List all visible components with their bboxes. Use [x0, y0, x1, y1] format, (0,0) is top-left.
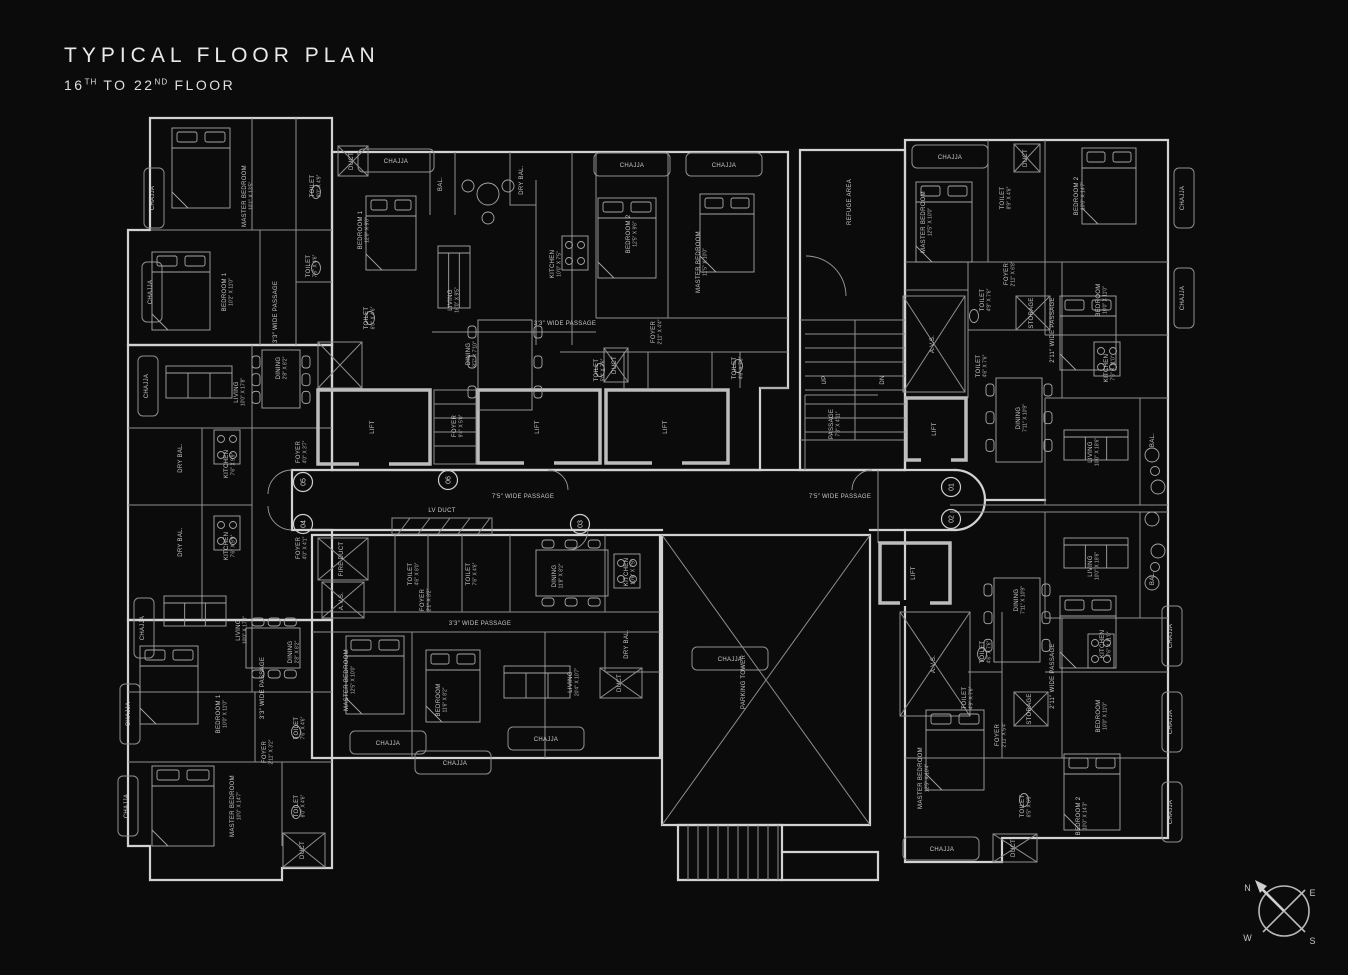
svg-text:12'5″ X 10'0″: 12'5″ X 10'0″ — [351, 666, 357, 694]
svg-text:FIRE DUCT: FIRE DUCT — [339, 542, 345, 577]
svg-text:BEDROOM 1: BEDROOM 1 — [216, 694, 222, 733]
room-label: CHAJJA — [443, 761, 467, 767]
room-label: DUCT — [617, 674, 623, 692]
svg-text:CHAJJA: CHAJJA — [1168, 710, 1174, 734]
svg-text:LIFT: LIFT — [911, 566, 917, 580]
svg-text:LIVING: LIVING — [234, 381, 240, 403]
svg-text:7'11″ X 10'9″: 7'11″ X 10'9″ — [1023, 404, 1029, 432]
svg-text:4'0″ X 3'7″: 4'0″ X 3'7″ — [303, 440, 309, 463]
room-label: LIVING20'4″ X 10'7″ — [568, 668, 581, 696]
room-label: FOYER4'0″ X 3'7″ — [296, 440, 309, 463]
room-label: LIVING10'0″ X 18'6″ — [1088, 438, 1101, 466]
room-label: 2'11″ WIDE PASSAGE — [1050, 297, 1056, 362]
svg-text:DUCT: DUCT — [617, 674, 623, 692]
room-label: TOILET4'6″ X 7'6″ — [980, 640, 993, 663]
outer-walls — [128, 118, 1168, 880]
svg-text:TOILET: TOILET — [294, 795, 300, 818]
compass-s: S — [1309, 936, 1316, 946]
svg-text:LIVING: LIVING — [1088, 441, 1094, 463]
svg-text:DRY BAL.: DRY BAL. — [178, 527, 184, 557]
room-label: STORAGE — [1027, 693, 1033, 724]
room-label: KITCHEN7'6″ X 11'0″ — [1100, 630, 1113, 658]
room-label: BAL. — [438, 177, 444, 191]
svg-text:A.V.S.: A.V.S. — [931, 655, 937, 673]
room-label: BAL. — [1150, 433, 1156, 447]
svg-text:10'0″ X 11'0″: 10'0″ X 11'0″ — [1103, 286, 1109, 314]
room-label: DINING2'8″ X 8'2″ — [288, 640, 301, 663]
svg-text:BAL.: BAL. — [438, 177, 444, 191]
svg-text:12'5″ X 10'0″: 12'5″ X 10'0″ — [928, 208, 934, 236]
svg-text:LIFT: LIFT — [535, 420, 541, 434]
unit-number-badge: 06 — [439, 471, 458, 490]
svg-text:BEDROOM: BEDROOM — [1096, 699, 1102, 732]
svg-text:KITCHEN: KITCHEN — [550, 250, 556, 278]
room-label: LIVING10'0″ X 17'8″ — [236, 616, 249, 644]
svg-text:LV DUCT: LV DUCT — [428, 508, 455, 514]
room-label: DUCT — [1011, 839, 1017, 857]
room-label: DN — [880, 375, 886, 384]
room-label: BEDROOM 210'0″ X 14'7″ — [1074, 176, 1087, 215]
svg-text:LIVING: LIVING — [568, 671, 574, 693]
room-label: CHAJJA — [1180, 186, 1186, 210]
room-label: A.V.S. — [931, 655, 937, 673]
svg-text:DINING: DINING — [1014, 589, 1020, 612]
compass-rose: N E W S — [1243, 880, 1316, 946]
room-label: DINING11'8″ X 8'2″ — [552, 563, 565, 588]
floor-plan-page: TYPICAL FLOOR PLAN 16TH TO 22ND FLOOR MA… — [0, 0, 1348, 975]
svg-text:12'0″ X 9'8″: 12'0″ X 9'8″ — [365, 217, 371, 243]
svg-text:BEDROOM: BEDROOM — [1096, 283, 1102, 316]
svg-text:TOILET: TOILET — [980, 641, 986, 664]
svg-text:BEDROOM 2: BEDROOM 2 — [626, 214, 632, 253]
compass-e: E — [1309, 888, 1316, 898]
svg-text:7'6″ X 4'6″: 7'6″ X 4'6″ — [301, 716, 307, 739]
room-label: KITCHEN7'6″ X 9'9″ — [224, 450, 237, 478]
svg-text:FOYER: FOYER — [262, 741, 268, 764]
svg-text:10'0″ X 11'0″: 10'0″ X 11'0″ — [1103, 702, 1109, 730]
svg-text:DRY BAL.: DRY BAL. — [178, 443, 184, 473]
svg-text:MASTER BEDROOM: MASTER BEDROOM — [344, 649, 350, 711]
room-label: CHAJJA — [712, 163, 736, 169]
room-label: 3'3″ WIDE PASSAGE — [260, 657, 266, 719]
svg-text:LIVING: LIVING — [236, 619, 242, 641]
svg-text:CHAJJA: CHAJJA — [1168, 624, 1174, 648]
room-label: KITCHEN10'0″ X 7'5″ — [550, 250, 563, 278]
svg-text:KITCHEN: KITCHEN — [224, 450, 230, 478]
svg-text:DINING: DINING — [276, 357, 282, 380]
room-label: LIFT — [911, 566, 917, 580]
svg-text:2'1″ X 3'2″: 2'1″ X 3'2″ — [427, 588, 433, 611]
room-label: DUCT — [300, 841, 306, 859]
svg-text:BAL.: BAL. — [1150, 571, 1156, 585]
room-label: TOILET5'0″ X 7'6″ — [594, 358, 607, 381]
room-label: FOYER2'11″ X 4'4″ — [651, 319, 664, 344]
room-label: BEDROOM 212'5″ X 9'6″ — [626, 214, 639, 253]
svg-text:DINING: DINING — [466, 343, 472, 366]
svg-text:05: 05 — [301, 478, 308, 486]
room-label: 7'5″ WIDE PASSAGE — [809, 494, 871, 500]
room-label: DINING7'11″ X 10'9″ — [1016, 404, 1029, 432]
room-label: CHAJJA — [1168, 624, 1174, 648]
room-label: 3'3″ WIDE PASSAGE — [449, 621, 511, 627]
svg-text:10'0″ X 14'7″: 10'0″ X 14'7″ — [1081, 182, 1087, 210]
room-label: MASTER BEDROOM11'5″ X 10'0″ — [696, 231, 709, 293]
svg-text:DINING: DINING — [288, 641, 294, 664]
svg-text:3'3″ WIDE PASSAGE: 3'3″ WIDE PASSAGE — [449, 621, 511, 627]
svg-text:UP: UP — [822, 376, 828, 385]
room-label: LIFT — [535, 420, 541, 434]
room-label: BEDROOM10'0″ X 11'0″ — [1096, 699, 1109, 732]
svg-text:10'0″ X 17'8″: 10'0″ X 17'8″ — [243, 616, 249, 644]
svg-text:MASTER BEDROOM: MASTER BEDROOM — [242, 165, 248, 227]
room-label: MASTER BEDROOM12'5″ X 10'0″ — [921, 191, 934, 253]
room-label: PASSAGE7'3″ X 4'11″ — [829, 409, 842, 439]
svg-text:KITCHEN: KITCHEN — [1104, 354, 1110, 382]
room-label: CHAJJA — [126, 702, 132, 726]
svg-text:DUCT: DUCT — [300, 841, 306, 859]
room-label: BEDROOM11'6″ X 8'2″ — [436, 683, 449, 716]
room-label: TOILET7'6″ X 4'6″ — [294, 716, 307, 739]
svg-text:CHAJJA: CHAJJA — [384, 159, 408, 165]
room-label: REFUGE AREA — [847, 179, 853, 225]
svg-text:2'11″ X 5'4″: 2'11″ X 5'4″ — [1002, 722, 1008, 747]
room-label: DINING7'11″ X 10'9″ — [1014, 586, 1027, 614]
svg-text:FOYER: FOYER — [420, 589, 426, 612]
svg-text:DUCT: DUCT — [612, 356, 618, 374]
room-label: BAL. — [1150, 571, 1156, 585]
svg-text:7'6″ X 11'0″: 7'6″ X 11'0″ — [1111, 355, 1117, 380]
room-label: DUCT — [349, 152, 355, 170]
unit-number-badge: 01 — [942, 478, 961, 497]
staircase — [434, 334, 905, 464]
room-label: TOILET6'5″ X 8'9″ — [1020, 794, 1033, 817]
svg-text:10'0″ X 14'7″: 10'0″ X 14'7″ — [237, 792, 243, 820]
room-label: CHAJJA — [1180, 286, 1186, 310]
svg-text:A.V.S.: A.V.S. — [339, 592, 345, 610]
room-label: CHAJJA — [140, 616, 146, 640]
svg-text:PASSAGE: PASSAGE — [829, 409, 835, 439]
room-label: TOILET8'0″ X 4'6″ — [294, 794, 307, 817]
title-block: TYPICAL FLOOR PLAN 16TH TO 22ND FLOOR — [64, 44, 380, 93]
room-label: FOYER2'11″ X 6'8″ — [1004, 261, 1017, 286]
svg-text:BAL.: BAL. — [1150, 433, 1156, 447]
room-labels: MASTER BEDROOM10'1″ X 13'5″TOILET8'0″ X … — [124, 149, 1186, 859]
room-label: FOYER2'1″ X 3'2″ — [420, 588, 433, 611]
svg-text:8'9″ X 4'6″: 8'9″ X 4'6″ — [1007, 186, 1013, 209]
svg-text:DUCT: DUCT — [349, 152, 355, 170]
room-label: BEDROOM 110'2″ X 11'0″ — [222, 272, 235, 311]
svg-text:DRY BAL.: DRY BAL. — [519, 165, 525, 195]
svg-text:7'3″ X 4'11″: 7'3″ X 4'11″ — [836, 411, 842, 436]
room-label: FOYER2'11″ X 3'2″ — [262, 739, 275, 764]
svg-text:CHAJJA: CHAJJA — [620, 163, 644, 169]
svg-text:DUCT: DUCT — [1023, 149, 1029, 167]
room-label: TOILET7'6″ X 4'6″ — [306, 254, 319, 277]
svg-text:2'11″ WIDE PASSAGE: 2'11″ WIDE PASSAGE — [1050, 297, 1056, 362]
room-label: CHAJJA — [718, 657, 742, 663]
unit-number-badge: 05 — [294, 473, 313, 492]
svg-text:03: 03 — [578, 520, 585, 528]
room-label: A.V.S. — [930, 335, 936, 353]
room-label: CHAJJA — [930, 847, 954, 853]
room-label: 3'3″ WIDE PASSAGE — [534, 321, 596, 327]
unit-number-badges: 050604030102 — [294, 471, 961, 534]
room-label: TOILET8'0″ X 4'9″ — [310, 174, 323, 197]
svg-text:2'11″ WIDE PASSAGE: 2'11″ WIDE PASSAGE — [1050, 643, 1056, 708]
room-label: KITCHEN7'6″ X 11'0″ — [1104, 354, 1117, 382]
svg-text:5'0″ X 7'6″: 5'0″ X 7'6″ — [601, 358, 607, 381]
svg-text:CHAJJA: CHAJJA — [443, 761, 467, 767]
svg-text:10'0″ X 17'8″: 10'0″ X 17'8″ — [241, 378, 247, 406]
room-label: MASTER BEDROOM10'1″ X 13'5″ — [242, 165, 255, 227]
svg-text:4'6″ X 7'6″: 4'6″ X 7'6″ — [987, 640, 993, 663]
room-label: TOILET7'6″ X 4'6″ — [466, 562, 479, 585]
svg-text:10'6″ X 7'9″: 10'6″ X 7'9″ — [631, 559, 637, 585]
svg-text:KITCHEN: KITCHEN — [224, 532, 230, 560]
svg-text:CHAJJA: CHAJJA — [1180, 186, 1186, 210]
svg-text:BEDROOM 1: BEDROOM 1 — [222, 272, 228, 311]
room-label: CHAJJA — [620, 163, 644, 169]
svg-text:CHAJJA: CHAJJA — [938, 155, 962, 161]
room-label: DINING2'8″ X 8'2″ — [276, 356, 289, 379]
room-label: MASTER BEDROOM10'0″ X 14'7″ — [230, 775, 243, 837]
svg-text:11'8″ X 8'2″: 11'8″ X 8'2″ — [559, 563, 565, 588]
svg-text:CHAJJA: CHAJJA — [126, 702, 132, 726]
svg-text:04: 04 — [301, 520, 308, 528]
svg-text:TOILET: TOILET — [732, 357, 738, 380]
svg-text:LIFT: LIFT — [663, 420, 669, 434]
room-label: LIFT — [932, 422, 938, 436]
svg-text:10'2″ X 11'0″: 10'2″ X 11'0″ — [229, 278, 235, 306]
svg-text:FOYER: FOYER — [995, 724, 1001, 747]
room-label: KITCHEN7'6″ X 9'9″ — [224, 532, 237, 560]
room-label: DUCT — [612, 356, 618, 374]
room-label: LIFT — [370, 420, 376, 434]
svg-text:20'4″ X 10'7″: 20'4″ X 10'7″ — [575, 668, 581, 696]
compass-w: W — [1243, 933, 1253, 943]
svg-text:KITCHEN: KITCHEN — [624, 558, 630, 586]
svg-text:FOYER: FOYER — [296, 537, 302, 560]
svg-text:10'0″ X 18'6″: 10'0″ X 18'6″ — [1095, 552, 1101, 580]
svg-text:CHAJJA: CHAJJA — [150, 186, 156, 210]
room-label: CHAJJA — [534, 737, 558, 743]
svg-text:TOILET: TOILET — [310, 175, 316, 198]
svg-text:LIVING: LIVING — [1088, 555, 1094, 577]
svg-text:7'11″ X 10'9″: 7'11″ X 10'9″ — [1021, 586, 1027, 614]
room-label: FOYER4'0″ X 4'1″ — [296, 536, 309, 559]
svg-text:DRY BAL.: DRY BAL. — [624, 629, 630, 659]
svg-text:CHAJJA: CHAJJA — [534, 737, 558, 743]
svg-text:9'4″ X 5'0″: 9'4″ X 5'0″ — [459, 414, 465, 437]
svg-text:7'6″ X 9'9″: 7'6″ X 9'9″ — [231, 534, 237, 557]
room-label: BEDROOM10'0″ X 11'0″ — [1096, 283, 1109, 316]
page-title: TYPICAL FLOOR PLAN — [64, 44, 380, 68]
svg-text:4'9″ X 7'6″: 4'9″ X 7'6″ — [969, 686, 975, 709]
room-label: UP — [822, 376, 828, 385]
svg-text:MASTER BEDROOM: MASTER BEDROOM — [696, 231, 702, 293]
svg-text:4'6″ X 7'6″: 4'6″ X 7'6″ — [739, 356, 745, 379]
svg-text:BEDROOM 2: BEDROOM 2 — [1076, 796, 1082, 835]
svg-text:CHAJJA: CHAJJA — [1180, 286, 1186, 310]
room-label: CHAJJA — [938, 155, 962, 161]
svg-text:2'8″ X 8'2″: 2'8″ X 8'2″ — [295, 640, 301, 663]
compass-n: N — [1244, 883, 1252, 893]
door-arcs — [268, 256, 872, 550]
svg-text:CHAJJA: CHAJJA — [124, 794, 130, 818]
room-label: CHAJJA — [124, 794, 130, 818]
svg-text:10'0″ X 11'0″: 10'0″ X 11'0″ — [223, 700, 229, 728]
room-label: DRY BAL. — [178, 443, 184, 473]
svg-text:TOILET: TOILET — [466, 563, 472, 586]
room-label: DRY BAL. — [519, 165, 525, 195]
room-label: A.V.S. — [339, 592, 345, 610]
room-label: DUCT — [1023, 149, 1029, 167]
svg-text:TOILET: TOILET — [408, 563, 414, 586]
svg-text:BEDROOM 2: BEDROOM 2 — [1074, 176, 1080, 215]
svg-text:8'7″ X 7'10″: 8'7″ X 7'10″ — [473, 341, 479, 367]
svg-text:CHAJJA: CHAJJA — [376, 741, 400, 747]
svg-text:CHAJJA: CHAJJA — [712, 163, 736, 169]
svg-text:6'0″ X 4'6″: 6'0″ X 4'6″ — [371, 306, 377, 329]
svg-text:10'1″ X 13'5″: 10'1″ X 13'5″ — [249, 182, 255, 210]
svg-text:MASTER BEDROOM: MASTER BEDROOM — [918, 747, 924, 809]
svg-text:4'0″ X 4'1″: 4'0″ X 4'1″ — [303, 536, 309, 559]
svg-text:CHAJJA: CHAJJA — [144, 374, 150, 398]
room-label: FOYER2'11″ X 5'4″ — [995, 722, 1008, 747]
room-label: 3'3″ WIDE PASSAGE — [273, 281, 279, 343]
svg-text:MASTER BEDROOM: MASTER BEDROOM — [230, 775, 236, 837]
room-label: LIVING16'0″ X 9'5″ — [448, 287, 461, 313]
svg-text:7'6″ X 11'0″: 7'6″ X 11'0″ — [1107, 631, 1113, 656]
svg-text:3'3″ WIDE PASSAGE: 3'3″ WIDE PASSAGE — [273, 281, 279, 343]
svg-text:7'6″ X 4'6″: 7'6″ X 4'6″ — [313, 254, 319, 277]
svg-text:TOILET: TOILET — [306, 255, 312, 278]
svg-text:LIVING: LIVING — [448, 289, 454, 311]
svg-text:2'11″ X 6'8″: 2'11″ X 6'8″ — [1011, 261, 1017, 286]
svg-text:BEDROOM 1: BEDROOM 1 — [358, 210, 364, 249]
room-label: TOILET4'9″ X 7'6″ — [962, 686, 975, 709]
svg-text:10'0″ X 14'3″: 10'0″ X 14'3″ — [1083, 802, 1089, 830]
svg-text:FOYER: FOYER — [296, 441, 302, 464]
svg-text:2'11″ X 3'2″: 2'11″ X 3'2″ — [269, 739, 275, 764]
svg-text:CHAJJA: CHAJJA — [1168, 800, 1174, 824]
svg-text:DUCT: DUCT — [1011, 839, 1017, 857]
room-label: TOILET6'0″ X 4'6″ — [364, 306, 377, 329]
room-label: CHAJJA — [1168, 800, 1174, 824]
room-label: LIVING10'0″ X 18'6″ — [1088, 552, 1101, 580]
room-label: LIVING10'0″ X 17'8″ — [234, 378, 247, 406]
room-label: LIFT — [663, 420, 669, 434]
svg-text:KITCHEN: KITCHEN — [1100, 630, 1106, 658]
svg-text:DN: DN — [880, 375, 886, 384]
svg-text:CHAJJA: CHAJJA — [930, 847, 954, 853]
svg-text:12'5″ X 10'4″: 12'5″ X 10'4″ — [925, 764, 931, 792]
room-label: LV DUCT — [428, 508, 455, 514]
svg-text:TOILET: TOILET — [962, 687, 968, 710]
svg-text:DINING: DINING — [552, 565, 558, 588]
svg-text:4'6″ X 8'0″: 4'6″ X 8'0″ — [415, 562, 421, 585]
svg-text:4'9″ X 7'6″: 4'9″ X 7'6″ — [987, 288, 993, 311]
svg-text:CHAJJA: CHAJJA — [718, 657, 742, 663]
room-label: CHAJJA — [150, 186, 156, 210]
svg-text:10'0″ X 18'6″: 10'0″ X 18'6″ — [1095, 438, 1101, 466]
svg-text:TOILET: TOILET — [594, 359, 600, 382]
room-label: DRY BAL. — [624, 629, 630, 659]
room-label: KITCHEN10'6″ X 7'9″ — [624, 558, 637, 586]
room-label: TOILET4'6″ X 7'6″ — [732, 356, 745, 379]
svg-text:DINING: DINING — [1016, 407, 1022, 430]
svg-text:2'11″ X 4'4″: 2'11″ X 4'4″ — [658, 319, 664, 344]
room-label: TOILET8'9″ X 4'6″ — [1000, 186, 1013, 209]
svg-text:LIFT: LIFT — [932, 422, 938, 436]
room-label: 7'5″ WIDE PASSAGE — [492, 494, 554, 500]
svg-text:MASTER BEDROOM: MASTER BEDROOM — [921, 191, 927, 253]
svg-text:06: 06 — [446, 476, 453, 484]
svg-text:FOYER: FOYER — [452, 415, 458, 438]
page-subtitle: 16TH TO 22ND FLOOR — [64, 77, 380, 93]
room-label: STORAGE — [1029, 297, 1035, 328]
svg-text:01: 01 — [949, 483, 956, 491]
svg-text:7'5″ WIDE PASSAGE: 7'5″ WIDE PASSAGE — [809, 494, 871, 500]
svg-text:A.V.S.: A.V.S. — [930, 335, 936, 353]
svg-text:6'5″ X 8'9″: 6'5″ X 8'9″ — [1027, 794, 1033, 817]
svg-text:FOYER: FOYER — [1004, 263, 1010, 286]
svg-text:7'6″ X 9'9″: 7'6″ X 9'9″ — [231, 452, 237, 475]
svg-text:CHAJJA: CHAJJA — [140, 616, 146, 640]
floor-plan-drawing: MASTER BEDROOM10'1″ X 13'5″TOILET8'0″ X … — [0, 0, 1348, 975]
room-label: FOYER9'4″ X 5'0″ — [452, 414, 465, 437]
room-label: DINING8'7″ X 7'10″ — [466, 341, 479, 367]
svg-text:12'5″ X 9'6″: 12'5″ X 9'6″ — [633, 221, 639, 247]
room-label: 2'11″ WIDE PASSAGE — [1050, 643, 1056, 708]
room-label: TOILET4'6″ X 8'0″ — [408, 562, 421, 585]
room-label: BEDROOM 210'0″ X 14'3″ — [1076, 796, 1089, 835]
svg-text:10'0″ X 7'5″: 10'0″ X 7'5″ — [557, 251, 563, 277]
svg-text:CHAJJA: CHAJJA — [148, 280, 154, 304]
svg-text:8'0″ X 4'9″: 8'0″ X 4'9″ — [317, 174, 323, 197]
svg-text:LIFT: LIFT — [370, 420, 376, 434]
north-needle — [1260, 887, 1284, 911]
room-label: CHAJJA — [384, 159, 408, 165]
svg-text:7'5″ WIDE PASSAGE: 7'5″ WIDE PASSAGE — [492, 494, 554, 500]
svg-text:11'5″ X 10'0″: 11'5″ X 10'0″ — [703, 248, 709, 276]
room-label: TOILET4'9″ X 7'6″ — [980, 288, 993, 311]
svg-text:4'6″ X 7'6″: 4'6″ X 7'6″ — [983, 354, 989, 377]
svg-text:TOILET: TOILET — [294, 717, 300, 740]
svg-text:TOILET: TOILET — [980, 289, 986, 312]
room-label: TOILET4'6″ X 7'6″ — [976, 354, 989, 377]
svg-text:FOYER: FOYER — [651, 321, 657, 344]
room-label: DRY BAL. — [178, 527, 184, 557]
room-label: MASTER BEDROOM12'5″ X 10'4″ — [918, 747, 931, 809]
room-label: FIRE DUCT — [339, 542, 345, 577]
svg-text:16'0″ X 9'5″: 16'0″ X 9'5″ — [455, 287, 461, 313]
room-label: CHAJJA — [376, 741, 400, 747]
svg-text:STORAGE: STORAGE — [1027, 693, 1033, 724]
room-label: CHAJJA — [1168, 710, 1174, 734]
svg-text:BEDROOM: BEDROOM — [436, 683, 442, 716]
svg-text:2'8″ X 8'2″: 2'8″ X 8'2″ — [283, 356, 289, 379]
svg-text:TOILET: TOILET — [1020, 795, 1026, 818]
room-label: CHAJJA — [148, 280, 154, 304]
svg-text:02: 02 — [949, 515, 956, 523]
svg-text:REFUGE AREA: REFUGE AREA — [847, 179, 853, 225]
svg-text:TOILET: TOILET — [364, 307, 370, 330]
room-label: CHAJJA — [144, 374, 150, 398]
svg-text:TOILET: TOILET — [976, 355, 982, 378]
room-label: BEDROOM 110'0″ X 11'0″ — [216, 694, 229, 733]
svg-text:3'3″ WIDE PASSAGE: 3'3″ WIDE PASSAGE — [260, 657, 266, 719]
